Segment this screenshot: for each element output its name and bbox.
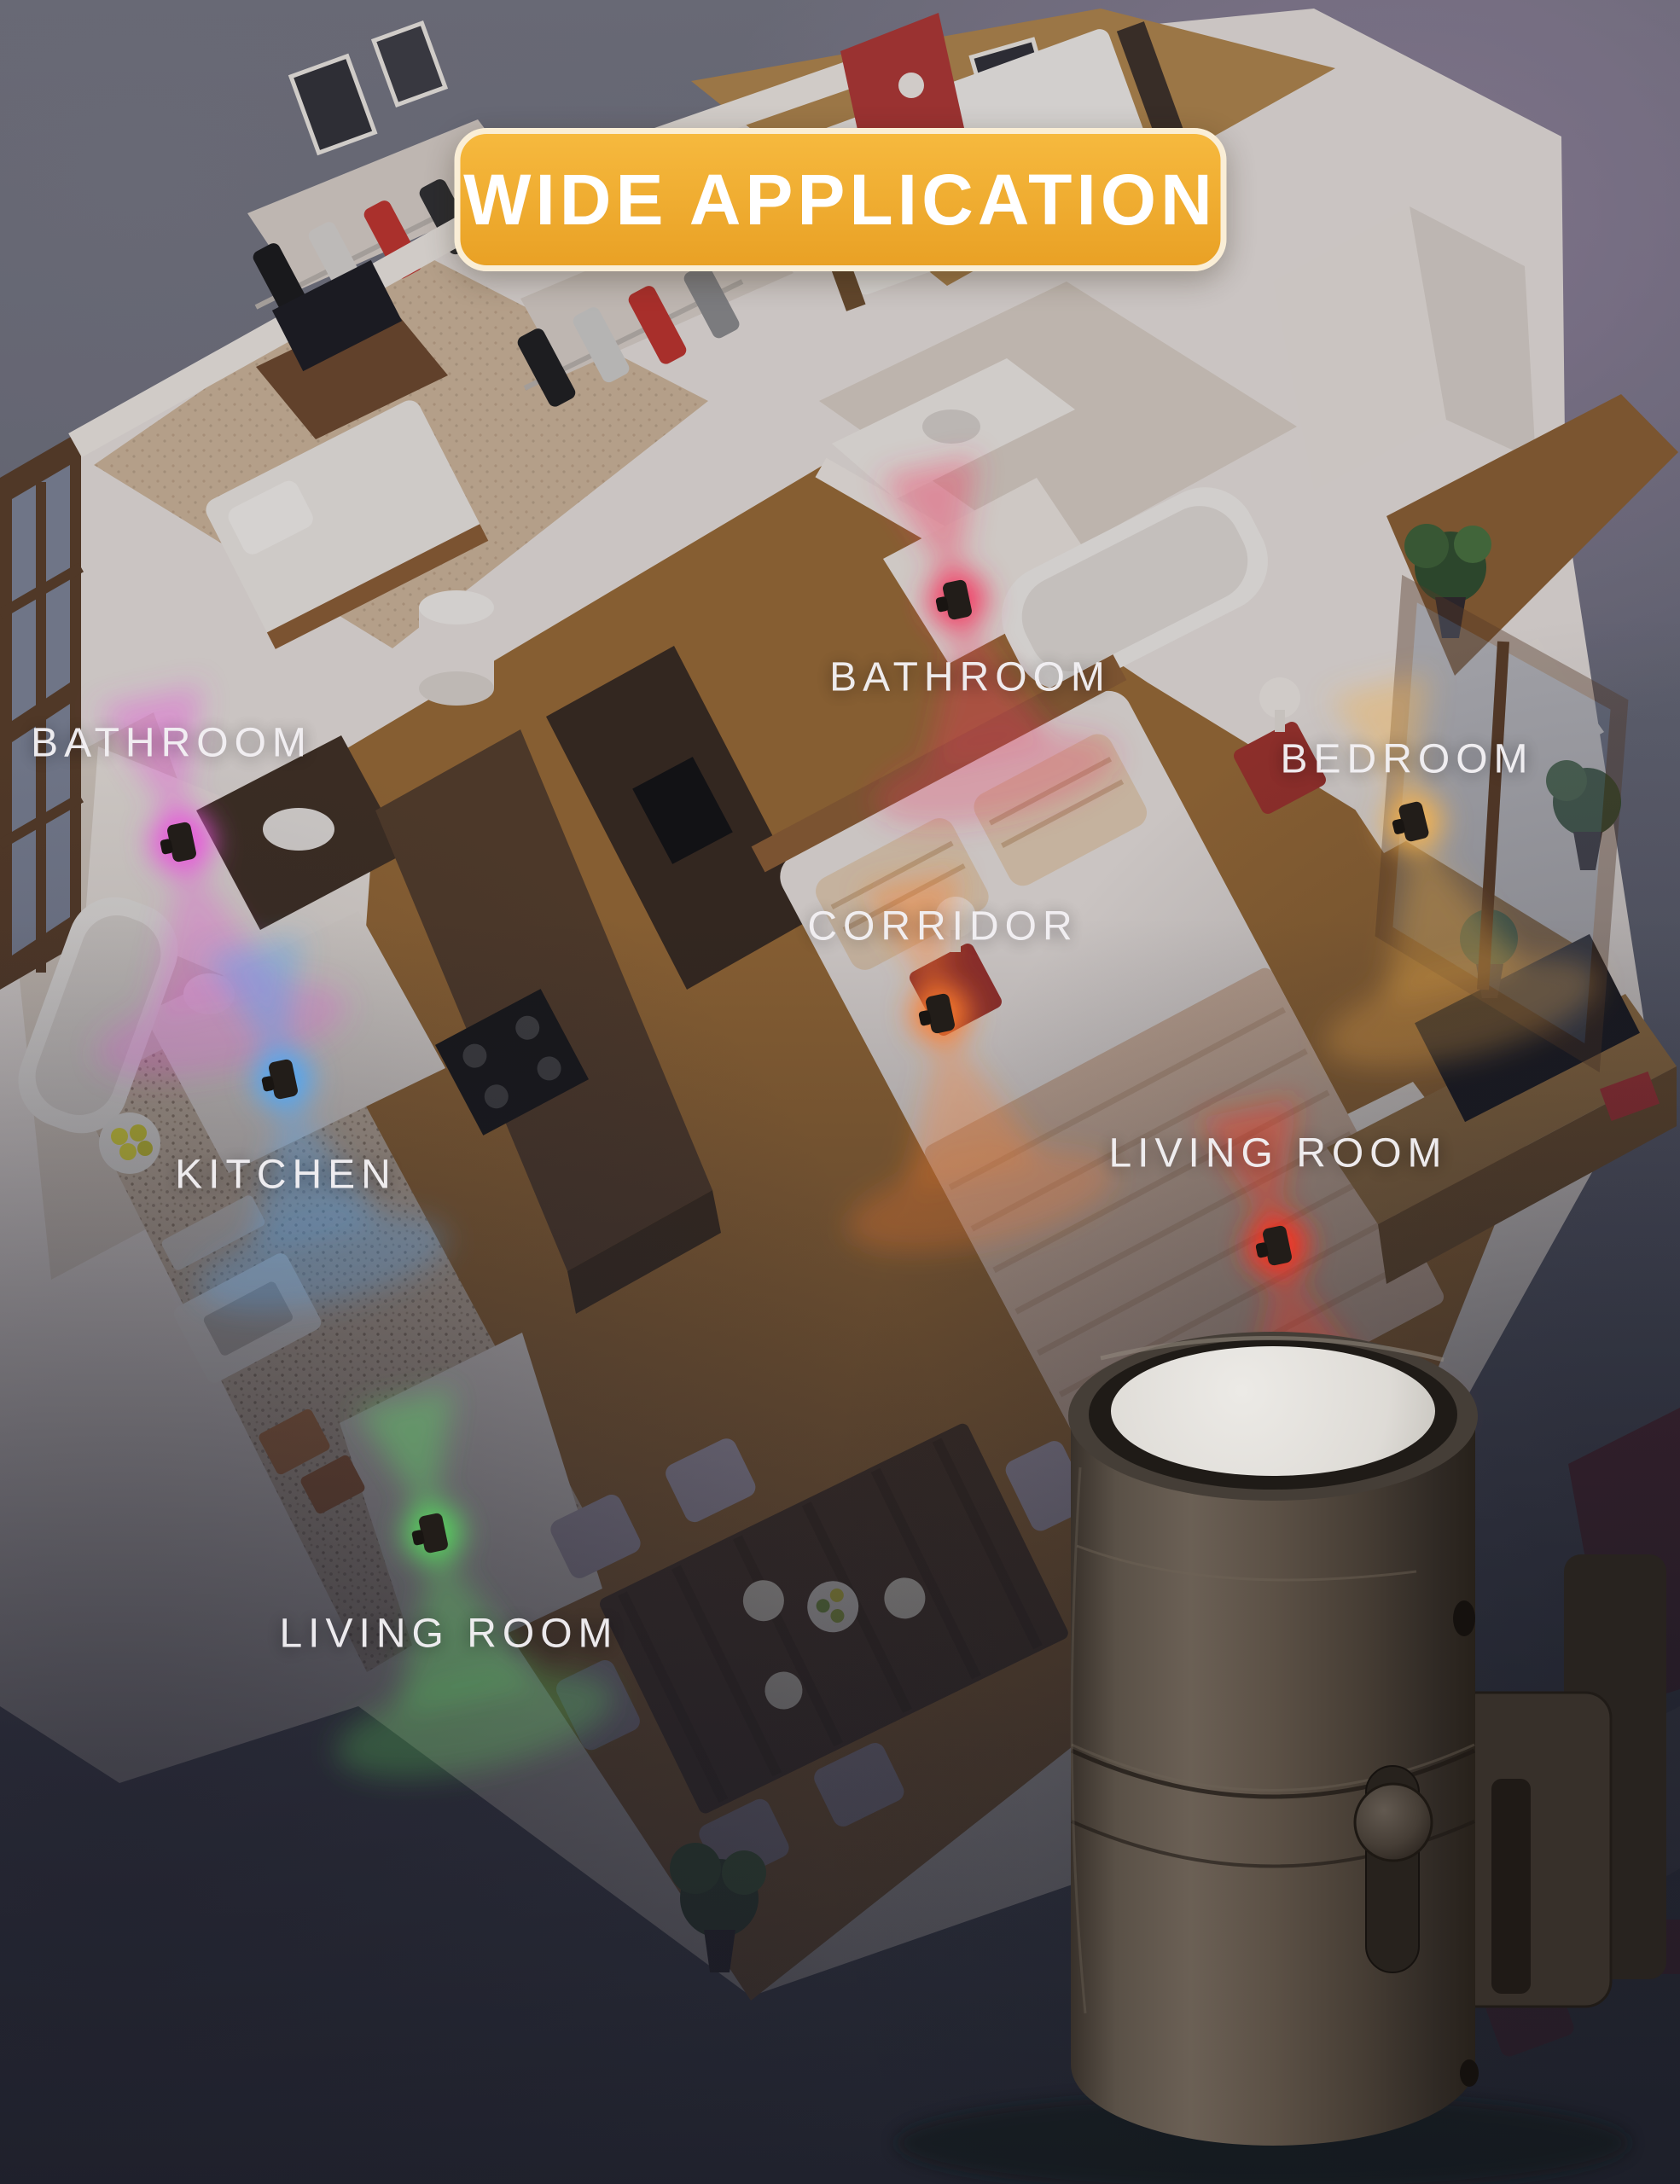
badge-label: WIDE APPLICATION bbox=[463, 159, 1217, 241]
room-label-kitchen: KITCHEN bbox=[175, 1152, 397, 1199]
floor-plan-scene bbox=[0, 0, 1680, 2184]
room-label-living-room-lounge: LIVING ROOM bbox=[279, 1611, 618, 1658]
product-lens bbox=[1111, 1346, 1435, 1476]
room-label-corridor: CORRIDOR bbox=[807, 903, 1078, 950]
slider-knob bbox=[1355, 1784, 1432, 1861]
room-label-bedroom: BEDROOM bbox=[1280, 736, 1533, 783]
product-marketing-image: WIDE APPLICATION BATHROOM BATHROOM BEDRO… bbox=[0, 0, 1680, 2184]
room-label-bathroom-left: BATHROOM bbox=[31, 720, 312, 767]
wide-application-badge: WIDE APPLICATION bbox=[454, 128, 1226, 271]
mounting-hole bbox=[1453, 1600, 1475, 1636]
room-label-living-room-tv: LIVING ROOM bbox=[1108, 1130, 1447, 1177]
room-label-bathroom-main: BATHROOM bbox=[829, 654, 1111, 701]
